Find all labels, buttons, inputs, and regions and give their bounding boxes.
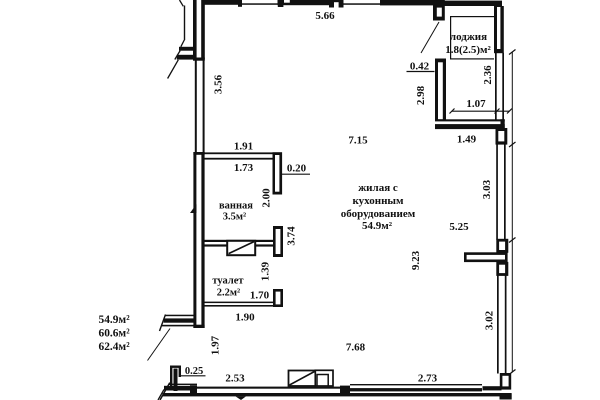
svg-text:2.53: 2.53 (225, 373, 245, 385)
svg-text:туалет: туалет (212, 276, 244, 287)
svg-text:1.73: 1.73 (234, 162, 254, 174)
svg-text:кухонным: кухонным (352, 195, 404, 207)
svg-text:3.74: 3.74 (286, 226, 298, 246)
svg-text:жилая с: жилая с (358, 182, 398, 194)
svg-text:5.66: 5.66 (315, 10, 335, 22)
svg-text:оборудованием: оборудованием (341, 208, 416, 220)
svg-text:ванная: ванная (219, 201, 253, 212)
svg-text:1.49: 1.49 (457, 134, 477, 146)
svg-text:1.97: 1.97 (210, 335, 222, 355)
svg-text:7.68: 7.68 (346, 342, 366, 354)
svg-text:2.98: 2.98 (415, 85, 427, 105)
svg-text:1.8(2.5)м²: 1.8(2.5)м² (445, 44, 491, 56)
svg-text:3.02: 3.02 (484, 310, 496, 330)
svg-text:1.90: 1.90 (235, 312, 255, 324)
svg-text:54.9м²: 54.9м² (362, 220, 393, 232)
svg-text:1.39: 1.39 (260, 261, 272, 281)
svg-text:0.20: 0.20 (287, 163, 307, 175)
svg-text:3.5м²: 3.5м² (223, 212, 246, 223)
svg-text:3.56: 3.56 (213, 74, 225, 94)
svg-text:60.6м²: 60.6м² (99, 327, 131, 339)
svg-text:1.07: 1.07 (466, 98, 486, 110)
svg-text:54.9м²: 54.9м² (99, 314, 131, 326)
svg-text:0.42: 0.42 (410, 61, 430, 73)
svg-text:2.2м²: 2.2м² (217, 288, 240, 299)
svg-text:лоджия: лоджия (450, 31, 487, 43)
svg-text:7.15: 7.15 (348, 135, 368, 147)
svg-text:1.91: 1.91 (234, 141, 253, 153)
svg-text:2.73: 2.73 (418, 373, 438, 385)
svg-text:62.4м²: 62.4м² (99, 341, 131, 353)
svg-text:5.25: 5.25 (449, 221, 469, 233)
svg-text:2.36: 2.36 (482, 65, 494, 85)
svg-text:2.00: 2.00 (261, 188, 273, 208)
svg-text:9.23: 9.23 (410, 250, 422, 270)
svg-text:1.70: 1.70 (250, 290, 270, 302)
svg-text:3.03: 3.03 (481, 179, 493, 199)
